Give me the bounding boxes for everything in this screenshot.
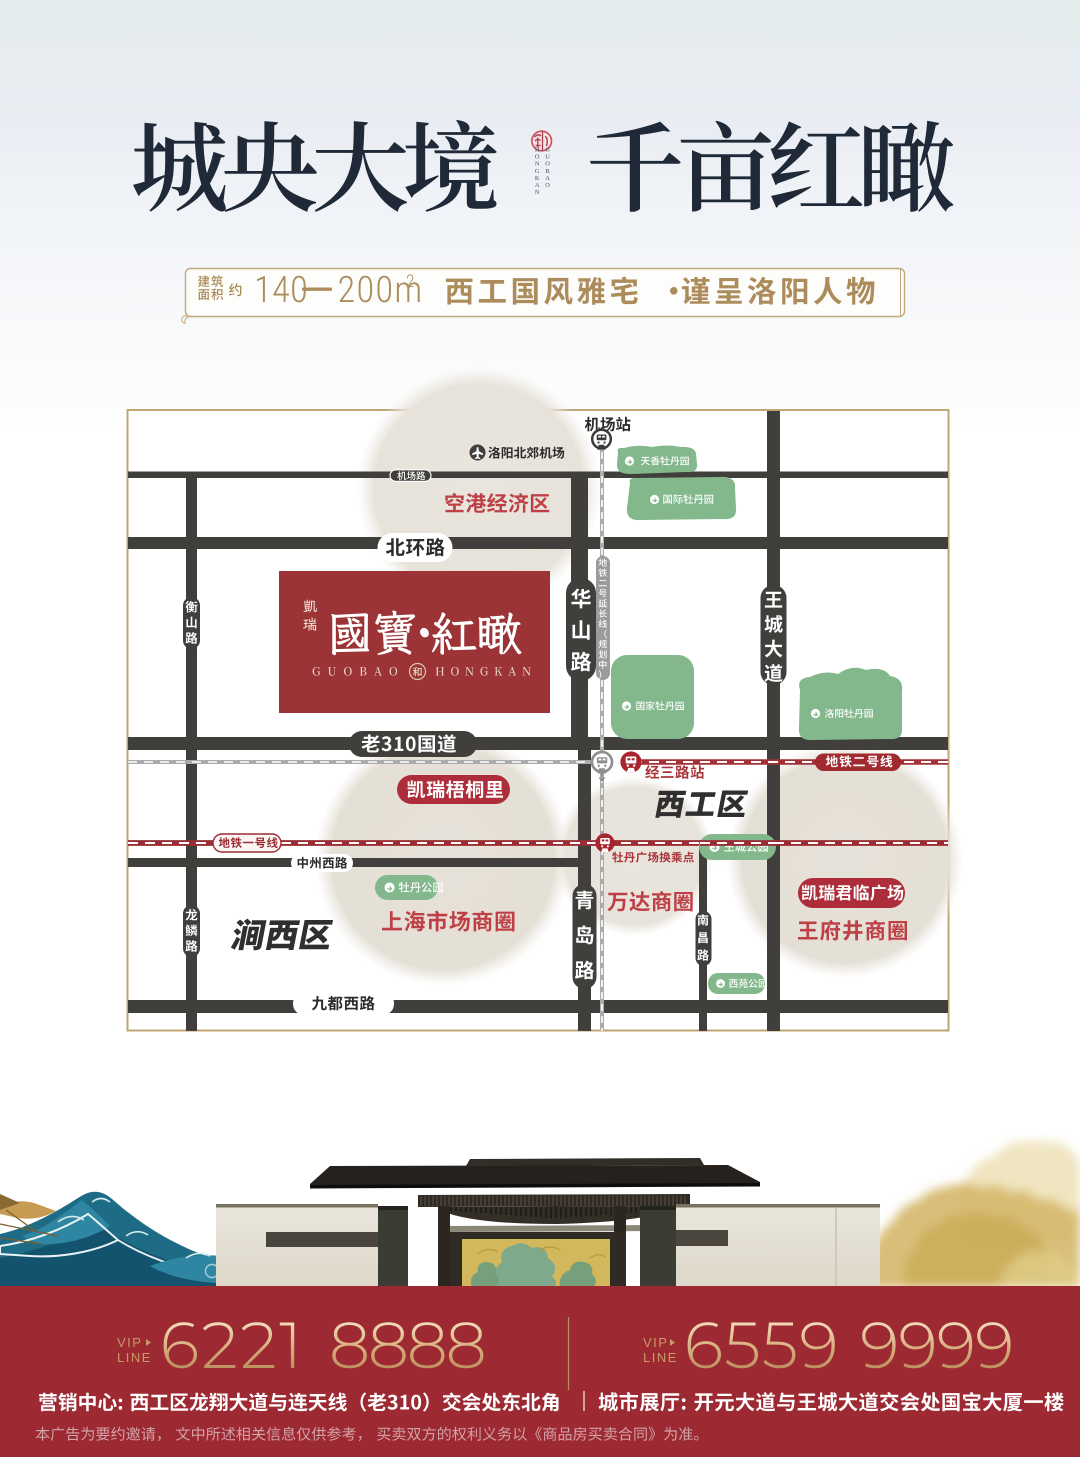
svg-text:O: O — [545, 161, 550, 168]
svg-text:VIP: VIP — [643, 1335, 668, 1350]
svg-text:LINE: LINE — [117, 1350, 152, 1365]
svg-text:B: B — [545, 168, 549, 175]
svg-text:K: K — [535, 175, 540, 182]
svg-text:N: N — [535, 189, 540, 196]
svg-text:O: O — [545, 182, 550, 189]
svg-text:N: N — [535, 161, 540, 168]
svg-text:VIP: VIP — [117, 1335, 142, 1350]
svg-text:G: G — [535, 168, 540, 175]
svg-text:H: H — [535, 147, 540, 154]
svg-text:O: O — [535, 154, 540, 161]
svg-text:G: G — [545, 147, 550, 154]
svg-text:U: U — [545, 154, 550, 161]
svg-text:A: A — [545, 175, 550, 182]
svg-text:LINE: LINE — [643, 1350, 678, 1365]
svg-text:A: A — [535, 182, 540, 189]
